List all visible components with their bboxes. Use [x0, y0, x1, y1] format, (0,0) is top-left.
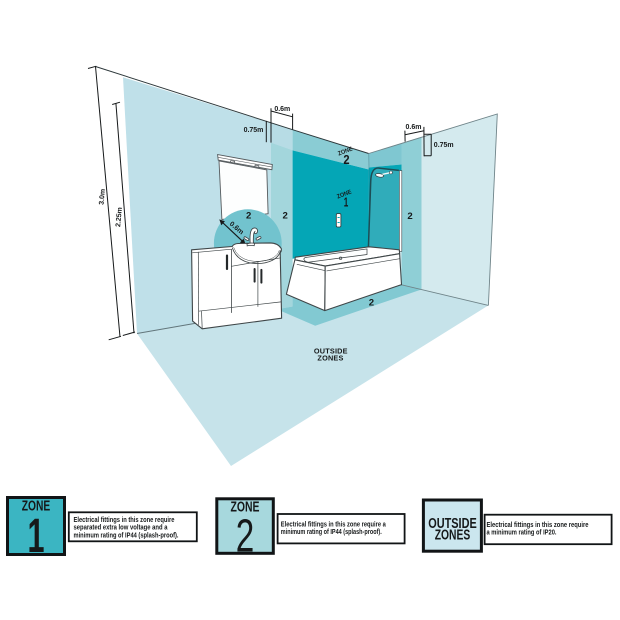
- svg-text:1: 1: [344, 195, 349, 210]
- svg-text:0.6m: 0.6m: [406, 124, 422, 131]
- svg-text:Electrical fittings in this zo: Electrical fittings in this zone require…: [281, 522, 386, 529]
- svg-text:1: 1: [28, 510, 45, 563]
- svg-text:ZONES: ZONES: [317, 354, 343, 363]
- svg-text:minimum rating of IP44 (splash: minimum rating of IP44 (splash-proof).: [281, 529, 382, 536]
- svg-text:2: 2: [236, 510, 255, 562]
- svg-text:ZONES: ZONES: [435, 528, 471, 544]
- svg-text:2: 2: [343, 152, 349, 167]
- svg-text:0.75m: 0.75m: [244, 127, 264, 134]
- svg-text:a minimum rating of IP20.: a minimum rating of IP20.: [487, 530, 557, 537]
- svg-text:2: 2: [246, 211, 251, 222]
- svg-text:0.75m: 0.75m: [434, 142, 454, 149]
- svg-text:3.0m: 3.0m: [99, 189, 107, 206]
- svg-text:Electrical fittings in this zo: Electrical fittings in this zone require: [487, 522, 589, 529]
- svg-text:minimum rating of IP44 (splash: minimum rating of IP44 (splash-proof).: [74, 532, 179, 539]
- svg-text:separated extra low voltage an: separated extra low voltage and a: [74, 525, 168, 532]
- svg-text:2: 2: [369, 297, 374, 308]
- svg-text:Electrical fittings in this zo: Electrical fittings in this zone require: [74, 517, 175, 524]
- svg-text:2: 2: [407, 211, 412, 222]
- svg-text:2: 2: [283, 210, 288, 221]
- svg-text:0.6m: 0.6m: [274, 106, 290, 113]
